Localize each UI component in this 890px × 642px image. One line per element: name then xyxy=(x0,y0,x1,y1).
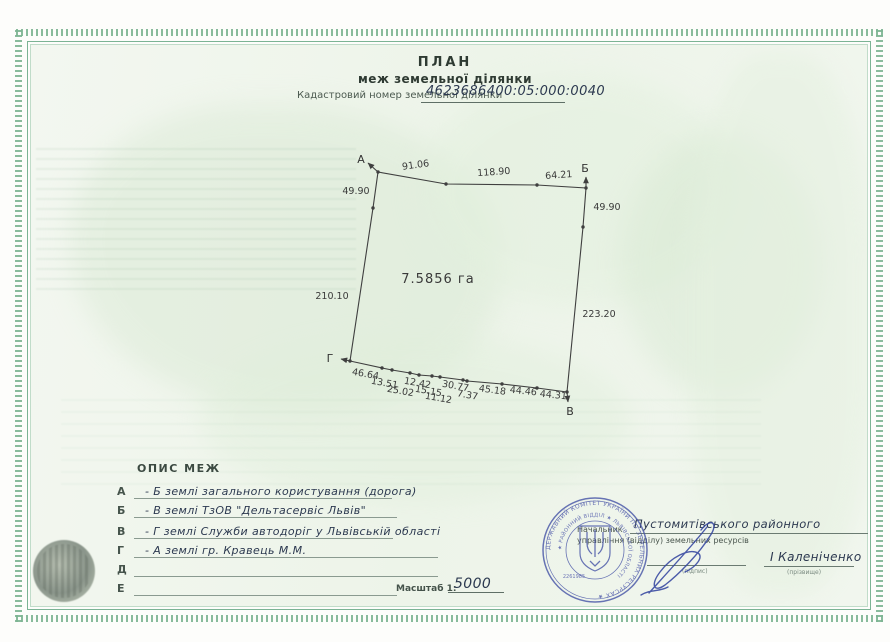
security-border-bottom xyxy=(16,615,884,622)
boundary-row: А - Б землі загального користування (дор… xyxy=(117,483,392,499)
official-title-line2: управління (відділу) земельних ресурсів xyxy=(577,536,749,545)
cadastral-plan-document: ПЛАН меж земельної ділянки Кадастровий н… xyxy=(0,0,890,642)
official-name: І Каленіченко xyxy=(770,550,862,564)
boundary-underline xyxy=(134,538,393,539)
boundary-underline xyxy=(134,595,397,596)
name-underline xyxy=(764,566,854,567)
boundary-underline xyxy=(134,517,397,518)
cadastral-underline xyxy=(421,102,565,103)
boundary-letter: Е xyxy=(117,582,125,595)
boundary-letter: Г xyxy=(117,544,124,557)
document-title: ПЛАН xyxy=(0,55,890,70)
boundary-underline xyxy=(134,557,438,558)
boundary-letter: В xyxy=(117,525,125,538)
security-border-right xyxy=(876,29,883,622)
signature-caption: (підпис) xyxy=(682,568,708,575)
boundary-underline xyxy=(134,498,392,499)
boundary-row: Е xyxy=(117,580,397,596)
signature-underline xyxy=(647,565,746,566)
boundaries-title: ОПИС МЕЖ xyxy=(137,462,221,475)
scale-value: 5000 xyxy=(454,576,491,592)
boundary-letter: Д xyxy=(117,563,127,576)
boundary-text: - В землі ТзОВ "Дельтасервіс Львів" xyxy=(145,504,366,517)
boundary-row: Д xyxy=(117,561,438,577)
security-border-left xyxy=(15,29,22,622)
scale-underline xyxy=(448,592,504,593)
official-region-handwritten: Пустомитівського районного xyxy=(634,517,821,531)
boundary-row: Б - В землі ТзОВ "Дельтасервіс Львів" xyxy=(117,502,397,518)
boundary-text: - Г землі Служби автодоріг у Львівській … xyxy=(145,525,440,538)
security-border-top xyxy=(16,29,884,36)
boundary-letter: Б xyxy=(117,504,125,517)
embossed-seal-texture xyxy=(37,544,91,598)
official-title-line1: Начальник xyxy=(577,525,623,534)
boundary-underline xyxy=(134,576,438,577)
boundary-letter: А xyxy=(117,485,126,498)
boundary-text: - А землі гр. Кравець М.М. xyxy=(145,544,306,557)
cadastral-number-value: 4623686400:05:000:0040 xyxy=(426,84,605,99)
embossed-seal xyxy=(33,540,95,602)
boundary-text: - Б землі загального користування (дорог… xyxy=(145,485,417,498)
official-underline xyxy=(630,533,868,534)
boundary-row: Г - А землі гр. Кравець М.М. xyxy=(117,542,438,558)
name-caption: (прізвище) xyxy=(787,569,821,576)
boundary-row: В - Г землі Служби автодоріг у Львівські… xyxy=(117,523,393,539)
